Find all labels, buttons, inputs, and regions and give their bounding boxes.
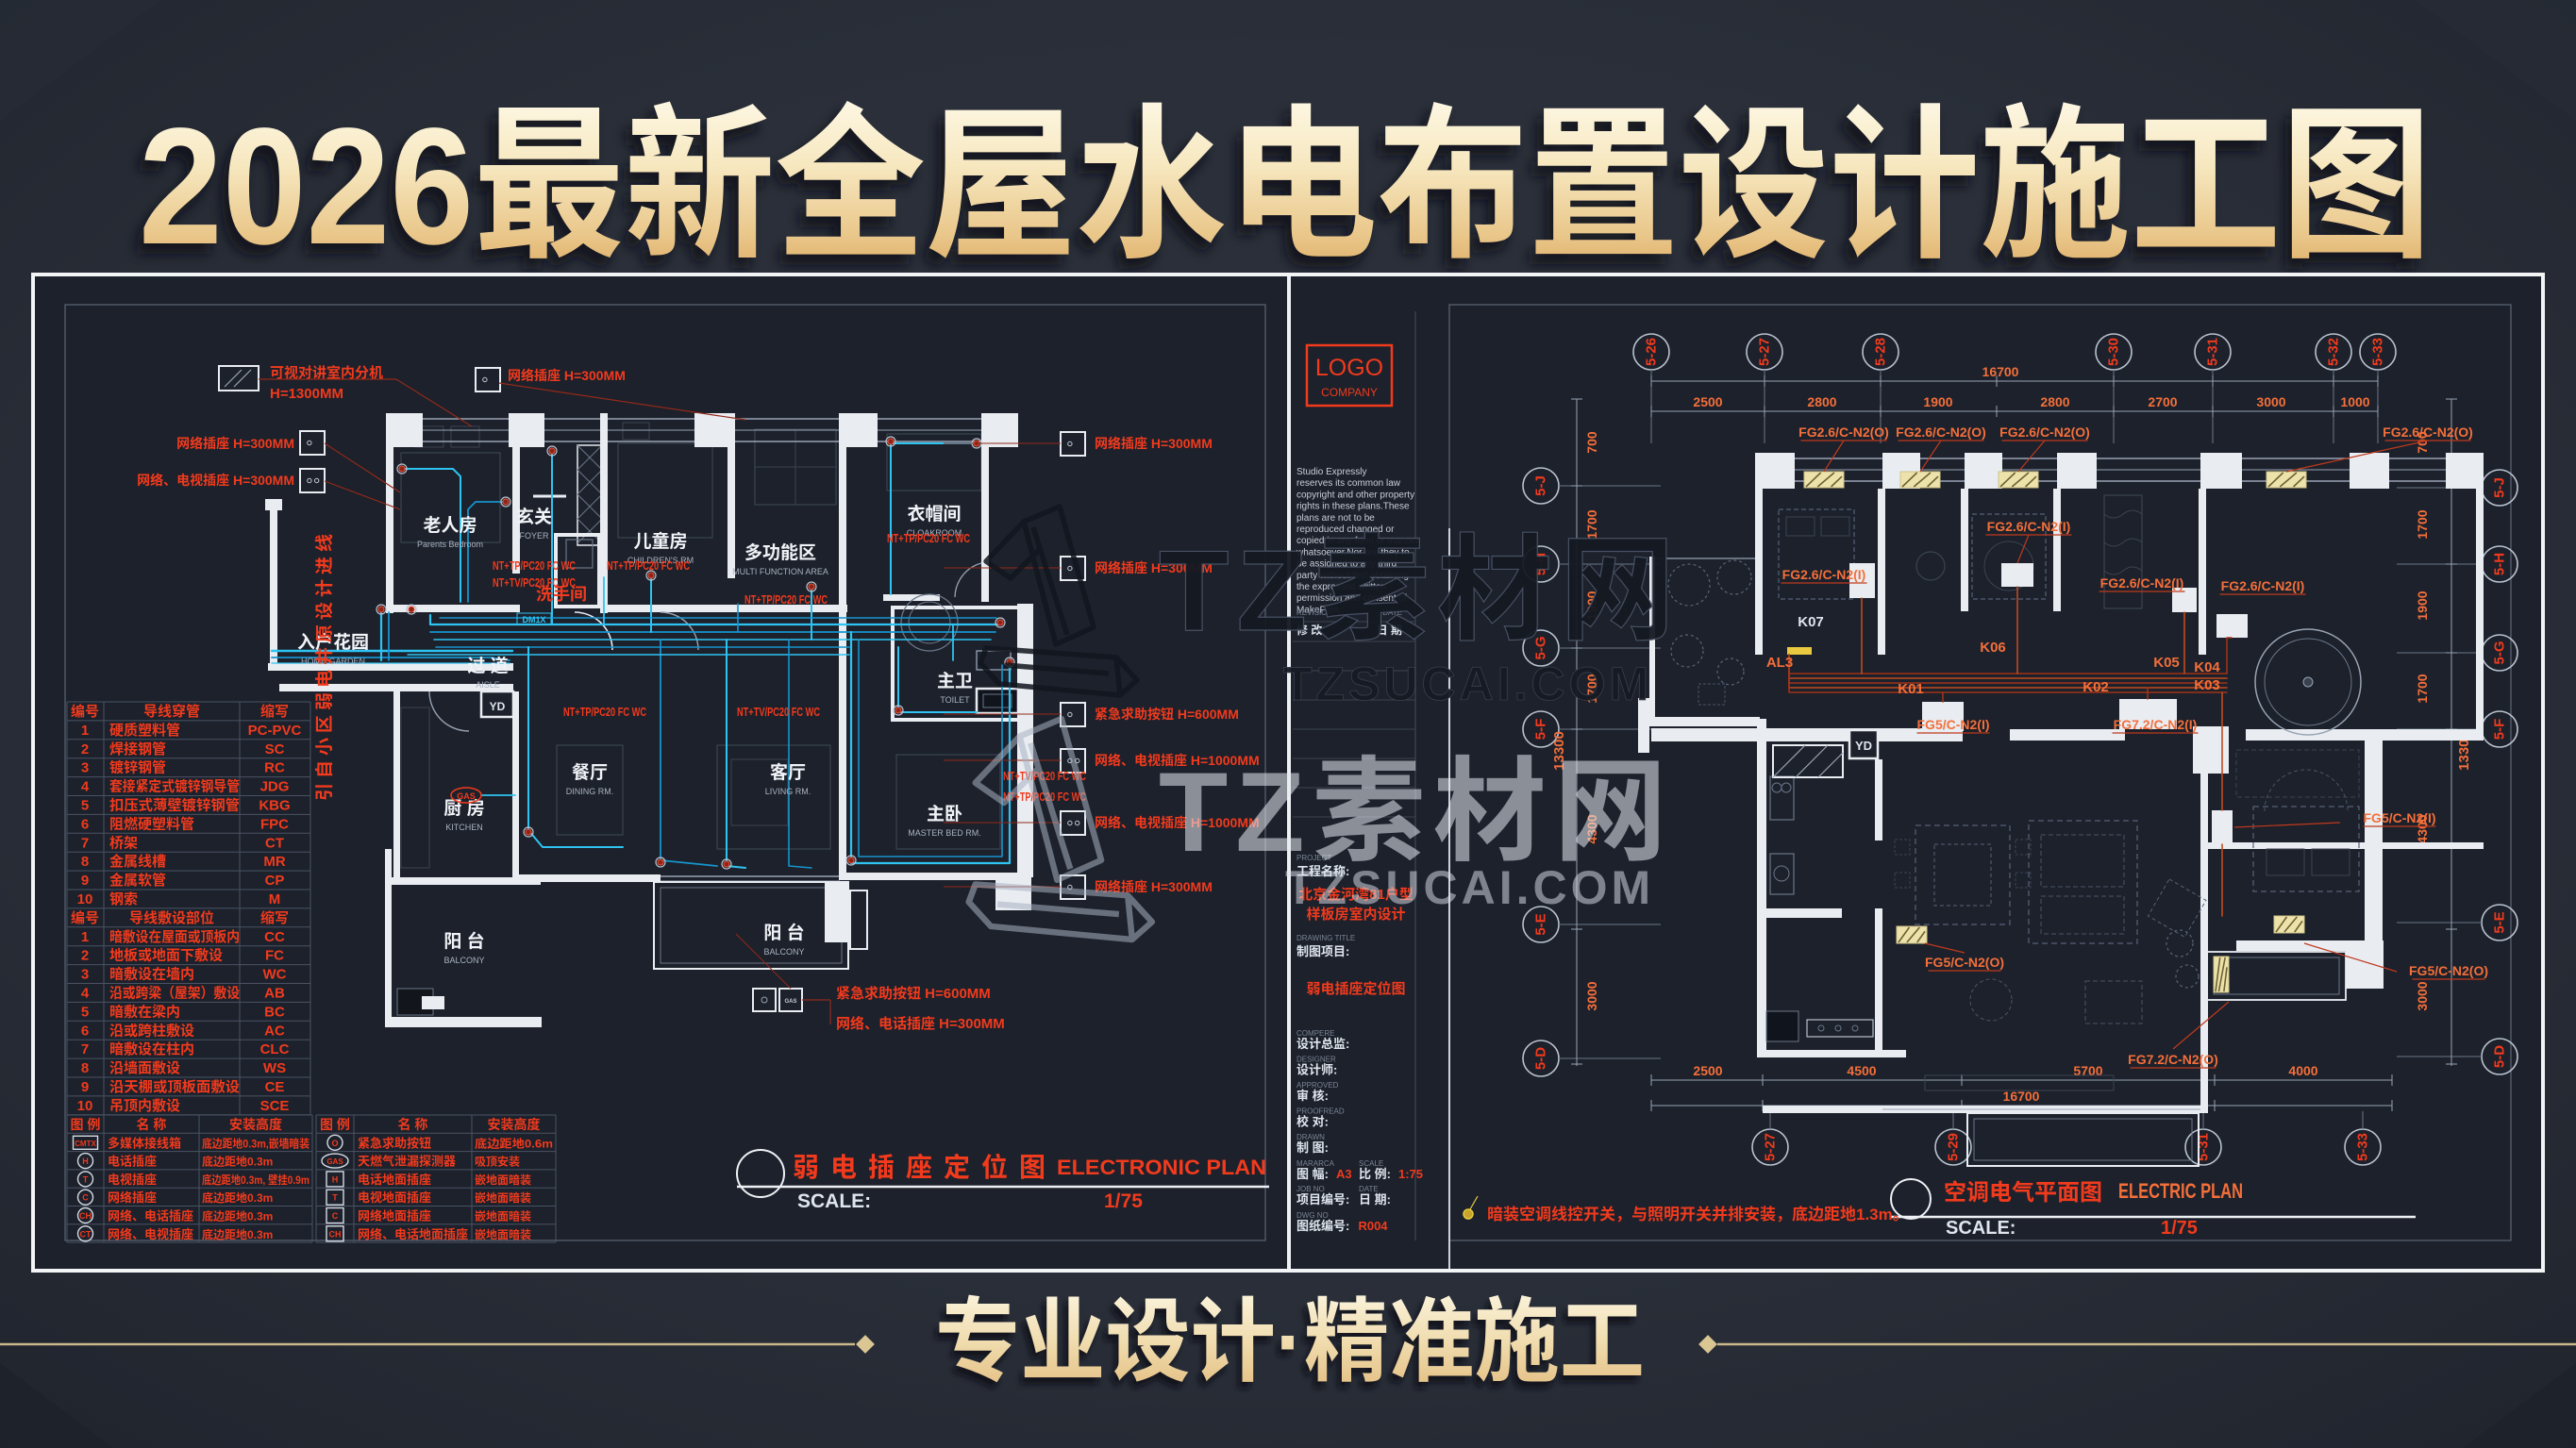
svg-text:紧急求助按钮 H=600MM: 紧急求助按钮 H=600MM — [836, 985, 991, 1002]
svg-text:5-J: 5-J — [2492, 477, 2508, 498]
svg-text:ELECTRONIC PLAN: ELECTRONIC PLAN — [1057, 1156, 1266, 1179]
svg-text:安装高度: 安装高度 — [488, 1117, 541, 1132]
svg-text:JDG: JDG — [260, 779, 290, 795]
svg-text:底边距地0.3m: 底边距地0.3m — [202, 1190, 273, 1205]
svg-text:1900: 1900 — [1923, 394, 1952, 409]
svg-text:16700: 16700 — [1982, 364, 2019, 379]
svg-text:校 对:: 校 对: — [1296, 1115, 1329, 1129]
svg-text:AB: AB — [264, 986, 285, 1002]
svg-text:5: 5 — [81, 1004, 89, 1020]
svg-text:比 例:: 比 例: — [1359, 1167, 1391, 1181]
svg-text:沿或跨梁（屋架）敷设: 沿或跨梁（屋架）敷设 — [109, 985, 240, 1002]
svg-text:金属线槽: 金属线槽 — [109, 853, 166, 870]
svg-text:FG2.6/C-N2(O): FG2.6/C-N2(O) — [1999, 424, 2090, 440]
svg-text:copyright and other property: copyright and other property — [1296, 490, 1414, 500]
svg-text:图 例: 图 例 — [71, 1117, 101, 1132]
svg-text:5-E: 5-E — [1533, 913, 1549, 935]
svg-text:1:75: 1:75 — [1398, 1167, 1423, 1181]
svg-text:BALCONY: BALCONY — [763, 947, 804, 957]
svg-text:5: 5 — [81, 798, 89, 814]
svg-text:网络地面插座: 网络地面插座 — [358, 1209, 431, 1223]
svg-text:电视地面插座: 电视地面插座 — [358, 1190, 431, 1205]
svg-text:底边距地0.3m: 底边距地0.3m — [202, 1227, 273, 1241]
svg-text:BC: BC — [264, 1004, 285, 1020]
svg-text:设计师:: 设计师: — [1296, 1063, 1337, 1077]
svg-text:空调电气平面图: 空调电气平面图 — [1944, 1180, 2102, 1206]
svg-text:K02: K02 — [2083, 679, 2109, 695]
svg-text:名 称: 名 称 — [137, 1117, 167, 1132]
svg-text:导线敷设部位: 导线敷设部位 — [129, 909, 214, 926]
svg-text:扣压式薄壁镀锌钢管: 扣压式薄壁镀锌钢管 — [109, 797, 240, 814]
svg-text:缩写: 缩写 — [260, 703, 289, 720]
svg-text:FG2.6/C-N2(O): FG2.6/C-N2(O) — [2383, 424, 2473, 440]
svg-text:CP: CP — [265, 873, 285, 889]
svg-text:底边距地0.3m: 底边距地0.3m — [202, 1209, 273, 1223]
svg-text:DINING RM.: DINING RM. — [566, 787, 614, 796]
svg-text:6: 6 — [81, 1023, 89, 1039]
svg-text:9: 9 — [81, 1079, 89, 1095]
svg-text:2700: 2700 — [2148, 394, 2177, 409]
svg-text:设计总监:: 设计总监: — [1296, 1037, 1349, 1051]
svg-text:AISLE: AISLE — [476, 680, 500, 690]
svg-text:CT: CT — [265, 835, 284, 851]
svg-text:plans are not to be: plans are not to be — [1296, 513, 1375, 524]
svg-text:5-J: 5-J — [1533, 475, 1549, 496]
svg-text:NT+TP/PC20 FC WC: NT+TP/PC20 FC WC — [744, 592, 828, 607]
svg-text:金属软管: 金属软管 — [109, 872, 166, 889]
svg-text:2: 2 — [81, 948, 89, 964]
svg-text:网络插座 H=300MM: 网络插座 H=300MM — [176, 436, 294, 451]
svg-text:FC: FC — [265, 948, 284, 964]
svg-text:5-F: 5-F — [2492, 719, 2508, 741]
svg-text:7: 7 — [81, 1041, 89, 1057]
svg-text:3: 3 — [81, 760, 89, 776]
svg-text:紧急求助按钮 H=600MM: 紧急求助按钮 H=600MM — [1095, 707, 1239, 722]
svg-text:1700: 1700 — [2415, 674, 2430, 703]
svg-text:图纸编号:: 图纸编号: — [1296, 1219, 1349, 1233]
svg-text:7: 7 — [81, 835, 89, 851]
svg-text:TZ素材网: TZ素材网 — [1159, 749, 1675, 875]
svg-text:4500: 4500 — [1847, 1063, 1876, 1078]
svg-text:网络插座 H=300MM: 网络插座 H=300MM — [508, 368, 626, 383]
svg-text:FG2.6/C-N2(I): FG2.6/C-N2(I) — [1782, 567, 1866, 582]
svg-text:K03: K03 — [2194, 677, 2220, 693]
svg-text:CC: CC — [264, 929, 285, 945]
svg-text:网络、电视插座 H=300MM: 网络、电视插座 H=300MM — [137, 473, 294, 488]
svg-text:LOGO: LOGO — [1315, 355, 1383, 381]
svg-text:DM1X: DM1X — [522, 615, 545, 624]
svg-text:项目编号:: 项目编号: — [1296, 1192, 1349, 1207]
svg-text:CMTX: CMTX — [75, 1140, 96, 1148]
svg-text:2500: 2500 — [1693, 1063, 1722, 1078]
svg-text:5-E: 5-E — [2492, 911, 2508, 933]
svg-text:底边距地0.3m,嵌墙暗装: 底边距地0.3m,嵌墙暗装 — [202, 1136, 309, 1150]
svg-text:网络、电视插座: 网络、电视插座 — [108, 1227, 193, 1241]
svg-text:LIVING RM.: LIVING RM. — [765, 787, 811, 796]
svg-text:C: C — [82, 1193, 89, 1203]
svg-text:引自小区弱电井原设计进线: 引自小区弱电井原设计进线 — [314, 529, 335, 801]
svg-text:1: 1 — [81, 929, 89, 945]
svg-text:弱电插座定位图: 弱电插座定位图 — [1306, 980, 1405, 997]
svg-text:3: 3 — [81, 967, 89, 983]
svg-text:Studio Expressly: Studio Expressly — [1296, 467, 1366, 477]
svg-text:镀锌钢管: 镀锌钢管 — [109, 759, 166, 776]
svg-text:5-33: 5-33 — [2355, 1133, 2371, 1161]
svg-text:NT+TP/PC20 FC WC: NT+TP/PC20 FC WC — [493, 558, 576, 573]
svg-text:TOILET: TOILET — [940, 695, 970, 705]
svg-text:MR: MR — [263, 854, 285, 870]
svg-text:reserves its common law: reserves its common law — [1296, 478, 1401, 489]
svg-text:洗手间: 洗手间 — [536, 585, 587, 604]
svg-text:RC: RC — [264, 760, 285, 776]
svg-text:GAS: GAS — [457, 791, 476, 801]
svg-text:TZSUCAI.COM: TZSUCAI.COM — [1283, 657, 1652, 710]
svg-text:5700: 5700 — [2073, 1063, 2102, 1078]
svg-text:过 道: 过 道 — [467, 655, 508, 676]
svg-text:FG5/C-N2(O): FG5/C-N2(O) — [2409, 963, 2488, 978]
svg-text:2026最新全屋水电布置设计施工图: 2026最新全屋水电布置设计施工图 — [139, 94, 2432, 279]
svg-text:WS: WS — [263, 1060, 286, 1076]
svg-text:H: H — [332, 1174, 339, 1184]
svg-text:编号: 编号 — [71, 909, 99, 926]
svg-text:O: O — [331, 1139, 338, 1148]
svg-text:导线穿管: 导线穿管 — [143, 703, 200, 720]
svg-text:C: C — [332, 1211, 339, 1221]
svg-text:缩写: 缩写 — [260, 909, 289, 926]
svg-text:TZ素材网: TZ素材网 — [1159, 526, 1682, 655]
svg-text:多功能区: 多功能区 — [744, 542, 816, 563]
svg-text:T: T — [83, 1174, 89, 1184]
svg-text:1000: 1000 — [2340, 394, 2369, 409]
svg-text:阳 台: 阳 台 — [443, 930, 484, 952]
svg-text:FG2.6/C-N2(I): FG2.6/C-N2(I) — [2221, 578, 2305, 593]
svg-text:电视插座: 电视插座 — [108, 1173, 157, 1187]
svg-text:K04: K04 — [2194, 659, 2220, 675]
svg-text:嵌地面暗装: 嵌地面暗装 — [475, 1173, 531, 1187]
svg-text:5-29: 5-29 — [1946, 1133, 1962, 1161]
svg-text:H=1300MM: H=1300MM — [270, 386, 343, 402]
svg-text:5-31: 5-31 — [2205, 338, 2221, 366]
svg-text:2800: 2800 — [2040, 394, 2069, 409]
svg-text:PC-PVC: PC-PVC — [248, 723, 302, 739]
svg-text:嵌地面暗装: 嵌地面暗装 — [475, 1209, 531, 1223]
svg-text:5-28: 5-28 — [1873, 338, 1889, 366]
svg-text:底边距地0.6m: 底边距地0.6m — [475, 1136, 553, 1150]
svg-text:5-27: 5-27 — [1757, 338, 1773, 366]
svg-text:1: 1 — [81, 723, 89, 739]
svg-text:电话地面插座: 电话地面插座 — [358, 1173, 431, 1187]
svg-text:天燃气泄漏探测器: 天燃气泄漏探测器 — [358, 1155, 456, 1169]
svg-text:暗装空调线控开关，与照明开关并排安装，底边距地1.3m。: 暗装空调线控开关，与照明开关并排安装，底边距地1.3m。 — [1487, 1205, 1909, 1223]
svg-text:网络插座: 网络插座 — [108, 1190, 157, 1205]
svg-text:4: 4 — [81, 986, 90, 1002]
svg-text:KBG: KBG — [259, 798, 290, 814]
svg-text:BALCONY: BALCONY — [443, 956, 484, 965]
svg-text:地板或地面下敷设: 地板或地面下敷设 — [109, 947, 223, 964]
svg-text:审 核:: 审 核: — [1296, 1089, 1329, 1103]
svg-text:5-D: 5-D — [1533, 1047, 1549, 1070]
svg-text:FG5/C-N2(I): FG5/C-N2(I) — [1917, 717, 1990, 732]
svg-text:K06: K06 — [1980, 640, 2006, 656]
svg-text:老人房: 老人房 — [423, 515, 477, 536]
svg-text:2: 2 — [81, 741, 89, 757]
svg-text:MULTI FUNCTION AREA: MULTI FUNCTION AREA — [732, 567, 828, 576]
svg-text:餐厅: 餐厅 — [572, 762, 608, 783]
svg-text:10: 10 — [77, 891, 93, 907]
svg-text:制图项目:: 制图项目: — [1296, 944, 1349, 958]
svg-text:底边距地0.3m, 壁挂0.9m: 底边距地0.3m, 壁挂0.9m — [202, 1173, 309, 1187]
svg-text:衣帽间: 衣帽间 — [907, 503, 961, 524]
svg-text:网络、电话插座: 网络、电话插座 — [108, 1209, 193, 1223]
svg-text:8: 8 — [81, 1060, 89, 1076]
svg-text:5-F: 5-F — [1533, 719, 1549, 741]
svg-text:1900: 1900 — [2415, 591, 2430, 620]
svg-text:KITCHEN: KITCHEN — [445, 823, 483, 832]
svg-text:SC: SC — [265, 741, 285, 757]
svg-text:暗敷设在墙内: 暗敷设在墙内 — [109, 966, 194, 983]
svg-text:FG2.6/C-N2(I): FG2.6/C-N2(I) — [2100, 575, 2184, 591]
svg-text:R004: R004 — [1358, 1219, 1388, 1233]
svg-text:3000: 3000 — [2415, 981, 2430, 1010]
svg-text:CLC: CLC — [260, 1041, 290, 1057]
svg-text:5-D: 5-D — [2492, 1045, 2508, 1068]
svg-text:1/75: 1/75 — [1104, 1190, 1143, 1212]
svg-text:8: 8 — [81, 854, 89, 870]
svg-text:网络、电话地面插座: 网络、电话地面插座 — [358, 1227, 468, 1241]
svg-text:套接紧定式镀锌钢导管: 套接紧定式镀锌钢导管 — [109, 778, 240, 795]
svg-text:5-33: 5-33 — [2370, 338, 2386, 366]
svg-text:儿童房: 儿童房 — [633, 530, 687, 552]
svg-text:嵌地面暗装: 嵌地面暗装 — [475, 1190, 531, 1205]
svg-text:安装高度: 安装高度 — [229, 1117, 282, 1132]
svg-text:Parents Bedroom: Parents Bedroom — [417, 540, 483, 549]
svg-text:2500: 2500 — [1693, 394, 1722, 409]
svg-text:K01: K01 — [1898, 681, 1924, 697]
svg-text:6: 6 — [81, 816, 89, 832]
svg-text:SCALE:: SCALE: — [1946, 1218, 2016, 1239]
svg-text:GAS: GAS — [326, 1157, 343, 1166]
svg-text:WC: WC — [263, 967, 287, 983]
svg-text:专业设计·精准施工: 专业设计·精准施工 — [935, 1290, 1645, 1393]
svg-text:沿或跨柱敷设: 沿或跨柱敷设 — [109, 1022, 194, 1039]
svg-text:CH: CH — [79, 1211, 92, 1221]
svg-text:主卫: 主卫 — [937, 671, 973, 691]
svg-text:FPC: FPC — [260, 816, 289, 832]
svg-text:FG5/C-N2(I): FG5/C-N2(I) — [2364, 810, 2436, 825]
svg-text:多媒体接线箱: 多媒体接线箱 — [108, 1136, 181, 1150]
svg-text:FG2.6/C-N2(I): FG2.6/C-N2(I) — [1987, 519, 2071, 534]
svg-text:嵌地面暗装: 嵌地面暗装 — [475, 1227, 531, 1241]
svg-text:图 幅:: 图 幅: — [1296, 1167, 1329, 1181]
svg-text:AL3: AL3 — [1766, 655, 1793, 671]
svg-text:暗敷设在柱内: 暗敷设在柱内 — [109, 1040, 194, 1057]
svg-text:吸顶安装: 吸顶安装 — [475, 1155, 520, 1169]
svg-text:4: 4 — [81, 779, 90, 795]
svg-text:1/75: 1/75 — [2161, 1218, 2198, 1239]
svg-text:NT+TP/PC20 FC WC: NT+TP/PC20 FC WC — [887, 531, 970, 545]
svg-text:3000: 3000 — [2256, 394, 2285, 409]
svg-text:玄关: 玄关 — [516, 507, 552, 527]
svg-text:制 图:: 制 图: — [1296, 1140, 1329, 1155]
svg-text:CT: CT — [80, 1229, 92, 1239]
svg-text:YD: YD — [1855, 739, 1872, 753]
svg-text:1700: 1700 — [2415, 509, 2430, 539]
svg-text:主卧: 主卧 — [927, 804, 962, 824]
svg-text:暗敷在梁内: 暗敷在梁内 — [109, 1003, 180, 1020]
svg-text:吊顶内敷设: 吊顶内敷设 — [109, 1097, 180, 1114]
svg-text:DRAWING TITLE: DRAWING TITLE — [1296, 934, 1355, 942]
svg-text:5-26: 5-26 — [1644, 338, 1660, 366]
svg-text:5-H: 5-H — [2492, 553, 2508, 575]
svg-text:硬质塑料管: 硬质塑料管 — [109, 722, 180, 739]
svg-text:钢索: 钢索 — [109, 890, 138, 907]
svg-text:M: M — [269, 891, 281, 907]
svg-text:沿天棚或顶板面敷设: 沿天棚或顶板面敷设 — [109, 1078, 240, 1095]
svg-text:FG2.6/C-N2(O): FG2.6/C-N2(O) — [1896, 424, 1986, 440]
svg-text:10: 10 — [77, 1098, 93, 1114]
svg-text:SCALE:: SCALE: — [797, 1190, 871, 1212]
svg-text:图 例: 图 例 — [320, 1117, 350, 1132]
svg-text:T: T — [332, 1193, 338, 1203]
svg-text:网络插座 H=300MM: 网络插座 H=300MM — [1095, 436, 1213, 451]
svg-text:焊接钢管: 焊接钢管 — [109, 741, 166, 757]
svg-text:H: H — [82, 1157, 89, 1166]
svg-text:5-30: 5-30 — [2106, 338, 2122, 366]
svg-text:编号: 编号 — [71, 703, 99, 720]
svg-text:客厅: 客厅 — [770, 761, 806, 783]
svg-text:厨 房: 厨 房 — [443, 798, 484, 819]
svg-text:TZSUCAI.COM: TZSUCAI.COM — [1285, 861, 1654, 914]
svg-text:700: 700 — [1584, 431, 1599, 454]
svg-text:2800: 2800 — [1807, 394, 1836, 409]
svg-text:沿墙面敷设: 沿墙面敷设 — [109, 1059, 180, 1076]
svg-text:网络、电话插座 H=300MM: 网络、电话插座 H=300MM — [836, 1015, 1005, 1032]
svg-text:NT+TV/PC20 FC WC: NT+TV/PC20 FC WC — [737, 705, 820, 719]
svg-text:ELECTRIC PLAN: ELECTRIC PLAN — [2118, 1179, 2243, 1203]
svg-text:NT+TP/PC20 FC WC: NT+TP/PC20 FC WC — [607, 558, 690, 573]
svg-text:电话插座: 电话插座 — [108, 1155, 157, 1169]
svg-text:5-27: 5-27 — [1763, 1133, 1779, 1161]
svg-text:底边距地0.3m: 底边距地0.3m — [202, 1155, 273, 1169]
svg-text:K05: K05 — [2153, 655, 2180, 671]
svg-text:3000: 3000 — [1584, 981, 1599, 1010]
svg-text:FG7.2/C-N2(O): FG7.2/C-N2(O) — [2128, 1052, 2218, 1067]
svg-text:5-32: 5-32 — [2326, 338, 2342, 366]
svg-text:FG2.6/C-N2(O): FG2.6/C-N2(O) — [1798, 424, 1889, 440]
svg-text:FG5/C-N2(O): FG5/C-N2(O) — [1925, 955, 2004, 970]
svg-text:K07: K07 — [1798, 614, 1824, 630]
svg-text:CH: CH — [329, 1229, 342, 1239]
svg-text:桥架: 桥架 — [109, 834, 138, 851]
svg-text:AC: AC — [264, 1023, 285, 1039]
svg-text:可视对讲室内分机: 可视对讲室内分机 — [270, 364, 383, 381]
svg-text:9: 9 — [81, 873, 89, 889]
svg-text:暗敷设在屋面或顶板内: 暗敷设在屋面或顶板内 — [109, 928, 240, 945]
svg-text:CE: CE — [265, 1079, 285, 1095]
svg-text:5-G: 5-G — [2492, 641, 2508, 664]
svg-text:弱电插座定位图: 弱电插座定位图 — [793, 1152, 1057, 1182]
svg-text:阳 台: 阳 台 — [763, 922, 804, 943]
svg-text:FOYER: FOYER — [519, 531, 549, 541]
svg-text:紧急求助按钮: 紧急求助按钮 — [358, 1136, 431, 1150]
svg-text:4000: 4000 — [2288, 1063, 2317, 1078]
svg-text:FG7.2/C-N2(I): FG7.2/C-N2(I) — [2114, 717, 2198, 732]
svg-text:NT+TP/PC20 FC WC: NT+TP/PC20 FC WC — [563, 705, 646, 719]
svg-text:YD: YD — [490, 700, 506, 713]
svg-text:A3: A3 — [1336, 1167, 1352, 1181]
svg-text:阻燃硬塑料管: 阻燃硬塑料管 — [109, 815, 194, 832]
svg-text:GAS: GAS — [784, 999, 796, 1005]
svg-text:日 期:: 日 期: — [1359, 1192, 1391, 1207]
svg-text:COMPANY: COMPANY — [1321, 386, 1378, 399]
svg-text:名 称: 名 称 — [398, 1117, 428, 1132]
svg-text:rights in these plans.These: rights in these plans.These — [1296, 502, 1410, 512]
svg-text:MASTER BED RM.: MASTER BED RM. — [908, 828, 981, 838]
svg-text:SCE: SCE — [260, 1098, 290, 1114]
